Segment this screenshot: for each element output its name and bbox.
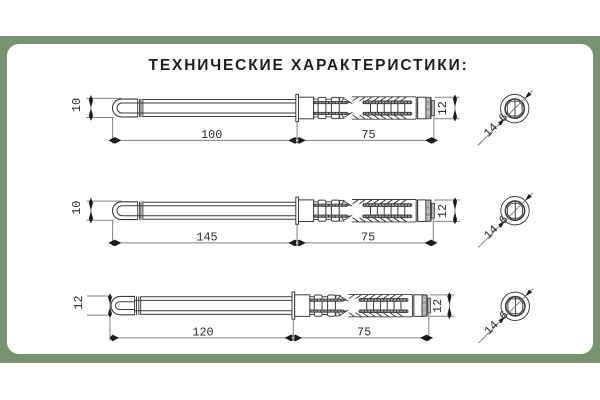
svg-text:75: 75 bbox=[357, 326, 371, 340]
svg-text:75: 75 bbox=[361, 231, 375, 245]
svg-text:12: 12 bbox=[436, 204, 450, 218]
svg-text:10: 10 bbox=[70, 98, 84, 112]
svg-text:145: 145 bbox=[196, 231, 217, 245]
svg-text:75: 75 bbox=[361, 128, 375, 142]
svg-text:12: 12 bbox=[431, 299, 445, 313]
svg-text:100: 100 bbox=[201, 128, 222, 142]
svg-text:10: 10 bbox=[70, 201, 84, 215]
svg-text:120: 120 bbox=[192, 326, 213, 340]
svg-text:12: 12 bbox=[436, 101, 450, 115]
svg-text:12: 12 bbox=[72, 296, 86, 310]
